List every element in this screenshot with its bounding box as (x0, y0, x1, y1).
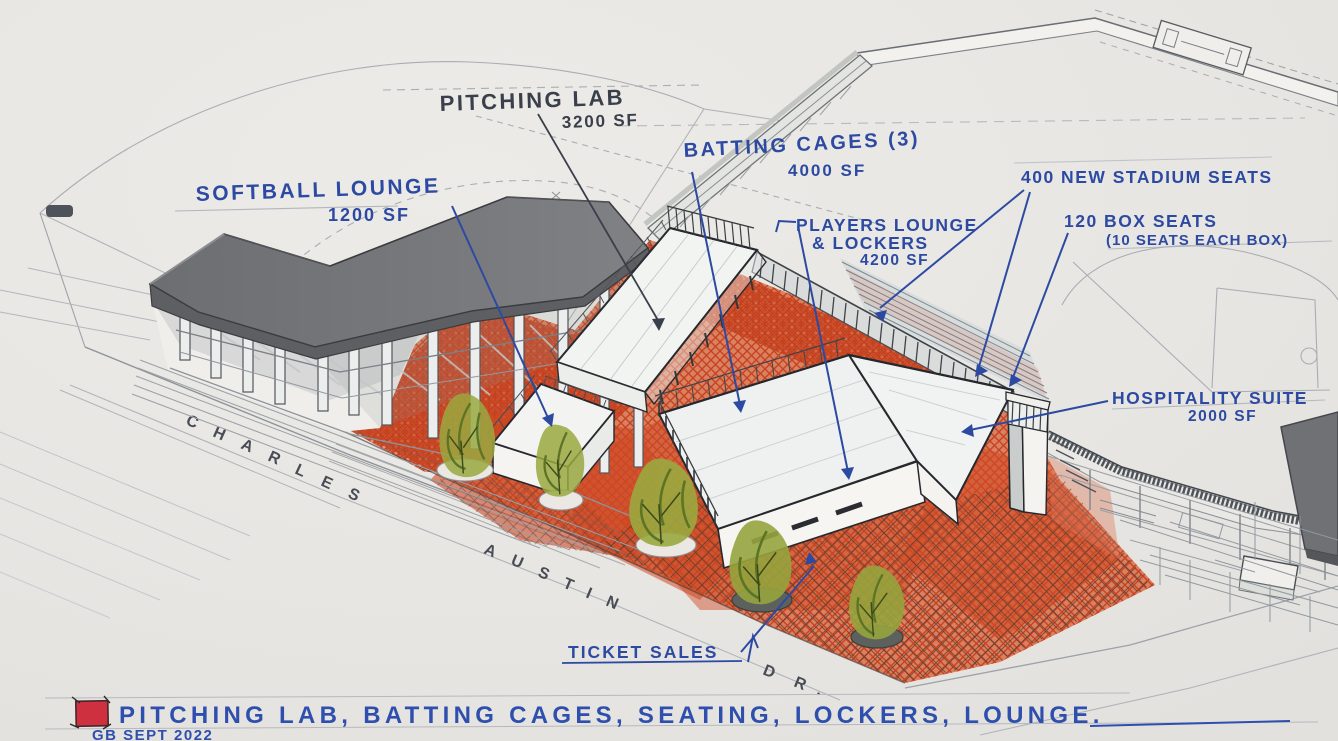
svg-text:400 NEW STADIUM SEATS: 400 NEW STADIUM SEATS (1021, 167, 1273, 187)
svg-text:TICKET SALES: TICKET SALES (568, 642, 718, 662)
svg-text:PLAYERS LOUNGE: PLAYERS LOUNGE (796, 215, 978, 235)
svg-text:2000 SF: 2000 SF (1188, 408, 1257, 425)
svg-text:(10 SEATS EACH BOX): (10 SEATS EACH BOX) (1106, 232, 1288, 249)
svg-text:120 BOX SEATS: 120 BOX SEATS (1064, 211, 1217, 231)
svg-text:& LOCKERS: & LOCKERS (812, 233, 929, 253)
svg-text:4000 SF: 4000 SF (788, 161, 866, 180)
svg-text:HOSPITALITY SUITE: HOSPITALITY SUITE (1112, 388, 1308, 408)
svg-text:4200 SF: 4200 SF (860, 252, 929, 269)
svg-text:1200 SF: 1200 SF (328, 205, 410, 225)
svg-text:GB SEPT 2022: GB SEPT 2022 (92, 727, 213, 741)
svg-text:3200 SF: 3200 SF (561, 110, 638, 132)
svg-text:PITCHING LAB, BATTING CAGES: PITCHING LAB, BATTING CAGES, SEATING, LO… (119, 702, 1104, 729)
